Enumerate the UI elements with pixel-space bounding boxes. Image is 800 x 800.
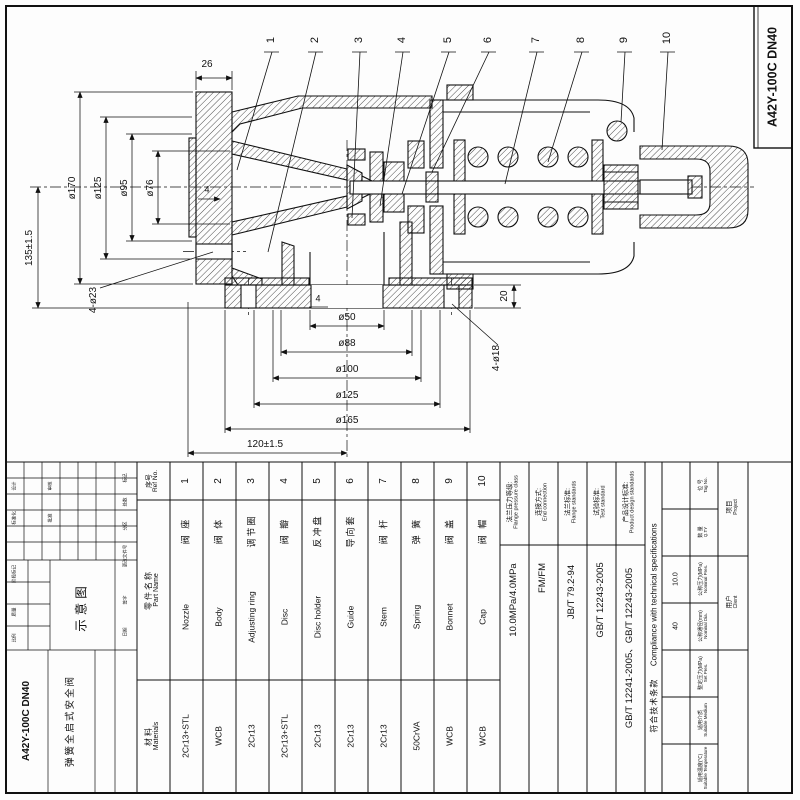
titleblock-cell: 处数 xyxy=(124,498,129,507)
part-material: 2Cr13 xyxy=(248,724,257,747)
part-name-en: Disc xyxy=(281,609,290,626)
callout-8: 8 xyxy=(576,37,588,43)
part-name-en: Cap xyxy=(479,609,488,625)
titleblock-cell: 批准 xyxy=(49,514,54,523)
titleblock-cell: 签字 xyxy=(124,596,129,605)
model-number: A42Y-100C DN40 xyxy=(22,681,33,761)
callout-6: 6 xyxy=(483,37,495,43)
part-row: 3 xyxy=(247,478,258,484)
project-row-label: 适用温度(℃) Suitable Temperature xyxy=(699,747,709,790)
titleblock-cell: 质量 xyxy=(13,608,18,617)
part-material: 2Cr13 xyxy=(314,724,323,747)
part-row: 1 xyxy=(181,478,192,484)
parts-header-name: 零件名称 Part Name xyxy=(145,570,161,610)
callout-3: 3 xyxy=(354,37,366,43)
spec-label: 法兰标准: Flange standards xyxy=(566,481,579,524)
dim-wall-4a: 4 xyxy=(204,185,209,194)
callout-4: 4 xyxy=(397,37,409,43)
spec-value: JB/T 79.2-94 xyxy=(567,565,577,619)
part-row: 7 xyxy=(379,478,390,484)
titleblock-cell: 比例 xyxy=(13,634,18,643)
spec-label: 法兰压力等级: Flange pressure class xyxy=(508,475,521,529)
cap-section xyxy=(604,121,748,228)
parts-header-materials: 材料 Materials xyxy=(145,722,161,750)
part-name-en: Adjusting ring xyxy=(248,591,257,643)
dim-88: ø88 xyxy=(338,339,355,350)
part-material: 2Cr13 xyxy=(347,724,356,747)
project-row-label: 适用介质 Suitable Medium xyxy=(699,703,709,737)
dim-100: ø100 xyxy=(336,365,359,376)
dim-120: 120±1.5 xyxy=(247,440,283,451)
parts-header-refno: 序号 Ref No. xyxy=(146,470,160,492)
spec-label: 连接方式: End connection xyxy=(537,483,550,521)
dim-wall-4b: 4 xyxy=(315,294,320,303)
valve-datasheet-page: A42Y-100C DN40 1 2 3 4 5 6 7 8 9 10 26 ø… xyxy=(0,0,800,800)
part-name-cn: 反冲盘 xyxy=(313,514,322,547)
dim-4x18: 4-ø18 xyxy=(492,345,503,371)
dim-76: ø76 xyxy=(146,179,157,196)
titleblock-cell: 日期 xyxy=(124,628,129,637)
spec-value: FM/FM xyxy=(538,563,548,593)
project-header: 项目 Project xyxy=(727,499,739,515)
drawing-number-title: A42Y-100C DN40 xyxy=(766,27,779,127)
part-material: 50CrVA xyxy=(413,721,422,750)
part-name-en: Bonnet xyxy=(446,604,455,631)
drawing-and-grid-layer xyxy=(0,0,800,800)
part-material: 2Cr13+STL xyxy=(182,714,191,758)
part-name-cn: 阀 杆 xyxy=(379,518,388,545)
part-row: 9 xyxy=(445,478,456,484)
part-row: 2 xyxy=(214,478,225,484)
part-material: WCB xyxy=(446,726,455,746)
callout-7: 7 xyxy=(531,37,543,43)
dim-125-inlet: ø125 xyxy=(94,177,105,200)
callout-1: 1 xyxy=(266,37,278,43)
titleblock-cell: 设计 xyxy=(13,482,18,491)
dim-135: 135±1.5 xyxy=(25,230,36,266)
part-row: 4 xyxy=(280,478,291,484)
project-row-label: 公称通径(mm) Nominal Dia. xyxy=(699,610,709,642)
part-row: 5 xyxy=(313,478,324,484)
product-name: 弹簧全启式安全阀 xyxy=(66,675,76,767)
project-row-label: 公称压力(MPa) Nominal Pres. xyxy=(699,562,709,596)
part-row: 10 xyxy=(478,475,489,486)
titleblock-cell: 阶段标记 xyxy=(13,565,18,583)
part-name-en: Disc holder xyxy=(314,596,323,639)
dim-125-outlet: ø125 xyxy=(336,391,359,402)
part-name-cn: 阀 瓣 xyxy=(280,518,289,545)
part-name-en: Body xyxy=(215,607,224,626)
spec-value: GB/T 12243-2005 xyxy=(596,562,606,637)
callout-9: 9 xyxy=(619,37,631,43)
part-row: 8 xyxy=(412,478,423,484)
project-row-label: 位 号 Tag No. xyxy=(699,477,709,493)
spec-value: GB/T 12241-2005、GB/T 12243-2005 xyxy=(625,568,635,728)
part-material: WCB xyxy=(479,726,488,746)
titleblock-cell: 更改文件号 xyxy=(124,545,129,568)
project-row-label: 整定压力(MPa) Set Pres. xyxy=(699,656,709,690)
part-name-cn: 阀 盖 xyxy=(445,518,454,545)
callout-5: 5 xyxy=(443,37,455,43)
outlet-flange xyxy=(225,278,472,308)
part-name-en: Guide xyxy=(347,606,356,629)
part-material: 2Cr13 xyxy=(380,724,389,747)
titleblock-cell: 审核 xyxy=(49,482,54,491)
part-name-cn: 阀 座 xyxy=(181,518,190,545)
part-row: 6 xyxy=(346,478,357,484)
part-name-cn: 阀 帽 xyxy=(478,518,487,545)
titleblock-cell: 标准化 xyxy=(13,511,18,525)
spec-value: 10.0MPa/4.0MPa xyxy=(509,563,519,636)
part-name-en: Spring xyxy=(413,605,422,630)
dim-170: ø170 xyxy=(68,177,79,200)
project-row-label: 数 量 Q.TY xyxy=(699,526,709,537)
dim-165: ø165 xyxy=(336,416,359,427)
callout-10: 10 xyxy=(662,32,674,44)
dim-20: 20 xyxy=(500,290,511,301)
schematic-label: 示意图 xyxy=(75,582,88,632)
part-material: 2Cr13+STL xyxy=(281,714,290,758)
dim-95: ø95 xyxy=(120,179,131,196)
inlet-flange xyxy=(189,92,232,284)
part-name-cn: 导向套 xyxy=(346,514,355,547)
dim-26: 26 xyxy=(201,60,212,71)
part-name-cn: 阀 体 xyxy=(214,518,223,545)
spec-label: 试验标准: Test standard xyxy=(595,485,608,518)
part-name-en: Stem xyxy=(380,607,389,627)
part-name-en: Nozzle xyxy=(182,604,191,630)
client-header: 用户 Client xyxy=(727,596,739,609)
dim-4x23: 4-ø23 xyxy=(89,287,100,313)
page-border xyxy=(6,6,792,793)
dim-50: ø50 xyxy=(338,313,355,324)
titleblock-cell: 分区 xyxy=(124,522,129,531)
titleblock-cell: 标记 xyxy=(124,474,129,483)
part-name-cn: 弹 簧 xyxy=(412,518,421,545)
compliance-banner: 符合技术条款 Compliance with technical specifi… xyxy=(645,523,662,732)
callout-2: 2 xyxy=(310,37,322,43)
part-material: WCB xyxy=(215,726,224,746)
part-name-cn: 调节圈 xyxy=(247,514,256,547)
project-row-value: 40 xyxy=(672,622,679,630)
project-row-value: 10.0 xyxy=(672,572,679,586)
dimension-lines xyxy=(32,71,521,457)
spec-label: 产品设计标准: Product design standards xyxy=(624,471,637,533)
